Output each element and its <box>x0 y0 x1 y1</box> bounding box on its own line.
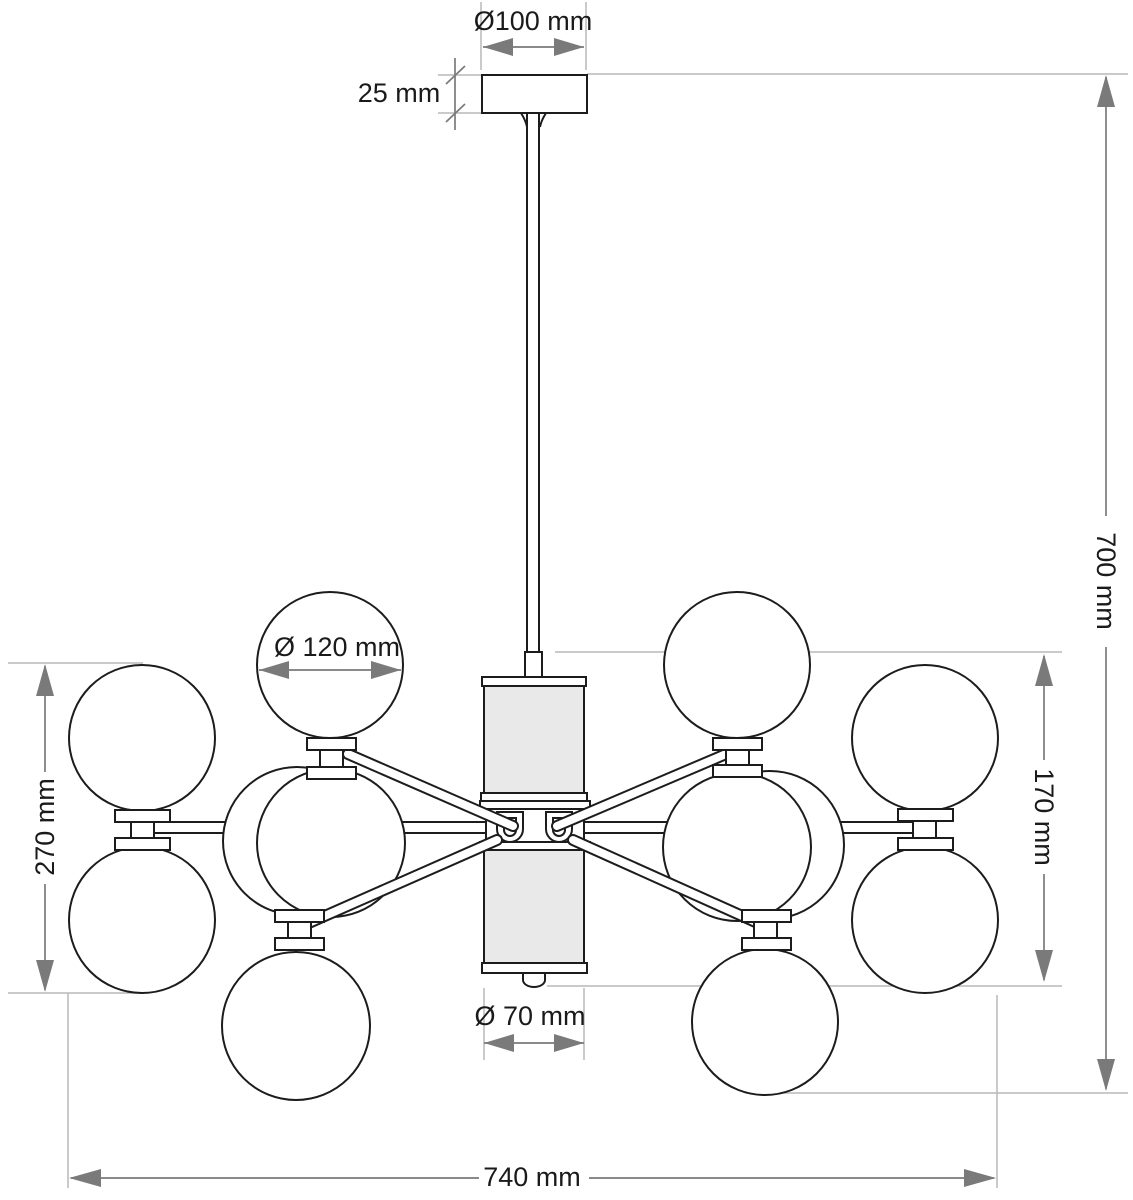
connector-stem <box>320 750 343 767</box>
arrowhead-left <box>484 1034 514 1052</box>
connector-stem <box>131 822 154 838</box>
center-column <box>480 677 590 987</box>
arrowhead-right <box>554 38 584 56</box>
arrowhead-left <box>483 38 513 56</box>
collar <box>115 810 170 822</box>
collar <box>275 938 324 950</box>
arrowhead-right <box>964 1169 996 1187</box>
connector-stem <box>913 821 936 838</box>
dim-label-canopy-diameter: Ø100 mm <box>474 6 593 36</box>
arrowhead-up <box>1035 654 1053 686</box>
connector-lower-right <box>742 910 791 950</box>
connector-stem <box>726 750 749 765</box>
column-bottom-cap <box>482 963 587 973</box>
connector-stem <box>754 922 777 938</box>
globe-outer-right-top <box>852 665 998 811</box>
dim-label-outer-pair-height: 270 mm <box>30 778 60 876</box>
dim-label-center-column-height: 170 mm <box>1029 768 1059 866</box>
ceiling-canopy <box>482 75 587 113</box>
dim-overall-width: 740 mm <box>69 1162 996 1192</box>
globe-front-lower-right-bottom <box>692 949 838 1095</box>
collar <box>115 838 170 850</box>
globe-raised-right-bottom <box>663 773 811 921</box>
arrowhead-down <box>1035 950 1053 982</box>
arrowhead-up <box>36 664 54 696</box>
column-lower-body <box>484 850 584 963</box>
globe-outer-left-top <box>69 665 215 811</box>
column-top-cap <box>482 677 586 686</box>
collar <box>742 910 791 922</box>
dim-canopy-height: 25 mm <box>358 58 465 130</box>
connector-stem <box>288 922 311 938</box>
column-upper-ring <box>481 793 587 801</box>
globe-outer-right-bottom <box>852 847 998 993</box>
fixture <box>69 75 998 1100</box>
stem <box>525 113 542 677</box>
dim-center-column-height: 170 mm <box>1029 654 1059 982</box>
collar <box>713 765 762 777</box>
dim-overall-height: 700 mm <box>1091 75 1121 1091</box>
chandelier-dimension-drawing: Ø100 mm 25 mm 700 mm Ø 120 mm 270 <box>0 0 1133 1200</box>
hub-top-flange <box>480 801 590 809</box>
collar <box>898 838 953 850</box>
dim-outer-pair-height: 270 mm <box>30 664 60 992</box>
arrowhead-left <box>69 1169 101 1187</box>
dim-label-globe-diameter: Ø 120 mm <box>274 632 400 662</box>
globe-raised-right-top <box>664 592 810 738</box>
collar <box>898 809 953 821</box>
dim-column-diameter: Ø 70 mm <box>474 1001 585 1052</box>
collar <box>307 767 356 779</box>
collar <box>275 910 324 922</box>
stem-rod-upper <box>527 113 539 652</box>
dim-label-column-diameter: Ø 70 mm <box>474 1001 585 1031</box>
dim-label-canopy-height: 25 mm <box>358 78 441 108</box>
dim-canopy-diameter: Ø100 mm <box>474 6 593 56</box>
finial-knob <box>523 973 545 987</box>
drawing-canvas: Ø100 mm 25 mm 700 mm Ø 120 mm 270 <box>0 0 1133 1200</box>
collar <box>307 738 356 750</box>
arrowhead-down <box>1097 1059 1115 1091</box>
globe-front-lower-left-bottom <box>222 952 370 1100</box>
arrowhead-up <box>1097 75 1115 107</box>
arrowhead-down <box>36 960 54 992</box>
column-upper-body <box>484 686 584 793</box>
collar <box>713 738 762 750</box>
dim-label-overall-height: 700 mm <box>1091 532 1121 630</box>
collar <box>742 938 791 950</box>
globe-outer-left-bottom <box>69 847 215 993</box>
connector-lower-left <box>275 910 324 950</box>
stem-rod-coupler <box>525 652 542 677</box>
arrowhead-right <box>554 1034 584 1052</box>
dim-label-overall-width: 740 mm <box>483 1162 581 1192</box>
rod-flare-right <box>540 113 546 127</box>
dimensions: Ø100 mm 25 mm 700 mm Ø 120 mm 270 <box>30 6 1121 1192</box>
